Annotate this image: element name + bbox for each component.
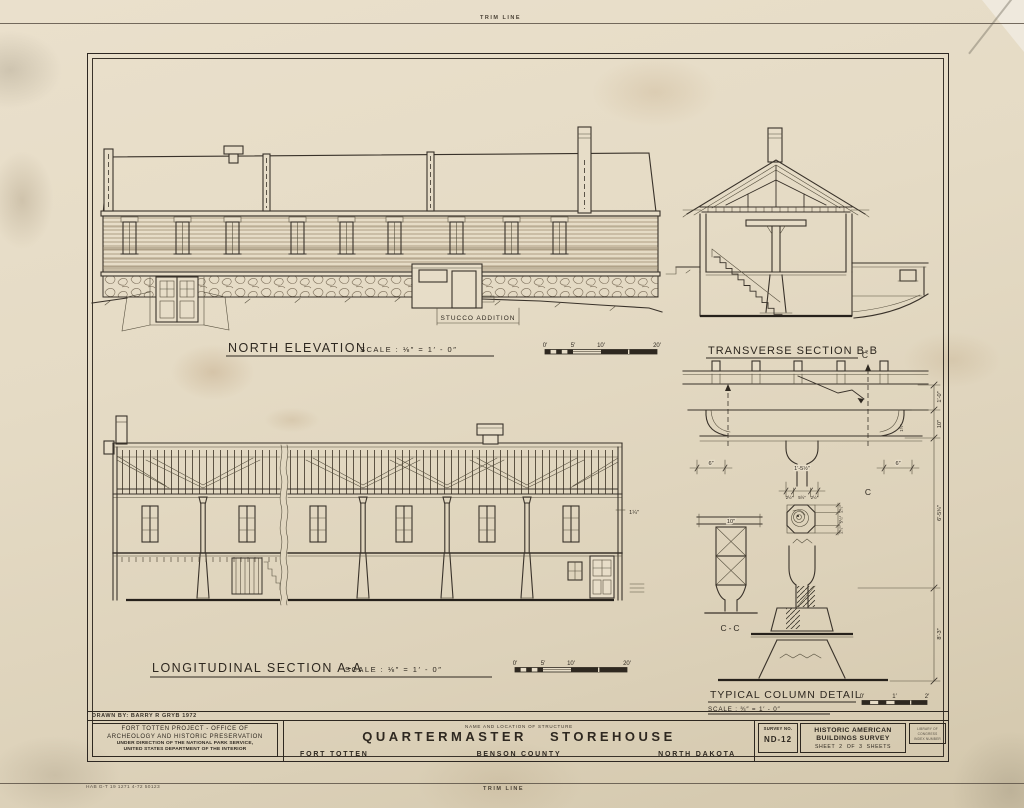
location-state: NORTH DAKOTA <box>658 751 736 758</box>
transverse-section-caption: TRANSVERSE SECTION B-B C <box>706 345 878 360</box>
transverse-section-title: TRANSVERSE SECTION B-B <box>708 345 878 357</box>
dim-label-right: 1¼″ <box>629 510 639 516</box>
library-of-congress-box: LIBRARY OF CONGRESS INDEX NUMBER <box>909 723 946 744</box>
dim-oct-3: 2½″ <box>839 526 844 534</box>
title-block-top-strip: DRAWN BY: BARRY R GRYB 1972 <box>87 711 949 721</box>
scale-tick: 10′ <box>567 661 576 667</box>
drawn-by-credit: DRAWN BY: BARRY R GRYB 1972 <box>92 713 197 719</box>
dim-oct-2: 5½″ <box>839 515 844 523</box>
title-block-agency-cell: FORT TOTTEN PROJECT - OFFICE OF ARCHEOLO… <box>87 721 283 761</box>
column-detail-scale-bar: 0′ 1′ 2′ <box>860 694 930 705</box>
loc-line-1: LIBRARY OF CONGRESS <box>910 727 945 737</box>
north-elevation-caption: NORTH ELEVATION SCALE : ⅛″ = 1′ - 0″ <box>226 341 494 356</box>
dim-six-right: 6″ <box>895 461 900 467</box>
longitudinal-scale-bar: 0′ 5′ 10′ 20′ <box>513 661 632 672</box>
longitudinal-section-scale: SCALE : ⅛″ = 1′ - 0″ <box>345 665 442 674</box>
structure-name: QUARTERMASTER STOREHOUSE <box>284 729 754 744</box>
scale-tick: 0′ <box>543 343 548 349</box>
longitudinal-section-caption: LONGITUDINAL SECTION A-A SCALE : ⅛″ = 1′… <box>150 661 492 677</box>
stucco-addition-label: STUCCO ADDITION <box>441 315 516 322</box>
project-office-box: FORT TOTTEN PROJECT - OFFICE OF ARCHEOLO… <box>92 723 278 757</box>
dim-chain-4: 8′-3″ <box>937 628 943 639</box>
section-cut-mark-c-top: C <box>862 350 868 360</box>
title-block: DRAWN BY: BARRY R GRYB 1972 FORT TOTTEN … <box>87 711 949 761</box>
scale-tick: 1′ <box>892 694 897 700</box>
structure-name-caption: NAME AND LOCATION OF STRUCTURE <box>284 724 754 729</box>
column-detail-drawing <box>683 361 940 684</box>
section-cut-mark-c-bottom: C <box>865 487 871 497</box>
dim-cc-width: 10″ <box>727 519 735 525</box>
habs-line-2: BUILDINGS SURVEY <box>801 735 905 743</box>
drawing-sheet: TRIM LINE TRIM LINE HAB G-T 19 1271 4-72… <box>0 0 1024 808</box>
scale-tick: 20′ <box>623 661 632 667</box>
project-line: ARCHEOLOGY AND HISTORIC PRESERVATION <box>93 734 277 742</box>
section-label-cc: C-C <box>720 623 741 633</box>
transverse-section-drawing <box>666 128 928 318</box>
scale-tick: 2′ <box>925 694 930 700</box>
scale-tick: 5′ <box>571 343 576 349</box>
survey-number: ND-12 <box>759 735 797 744</box>
column-detail-title: TYPICAL COLUMN DETAIL <box>710 689 862 701</box>
dim-chain-1: 1′-0″ <box>937 391 943 402</box>
scale-tick: 0′ <box>513 661 518 667</box>
column-detail-dim-labels: 1′-0″ 10″ 6′-5¾″ 8′-3″ 6″ 6″ 1′-5½″ 2½″ … <box>708 391 943 639</box>
north-elevation-title: NORTH ELEVATION <box>228 341 367 355</box>
scale-tick: 20′ <box>653 343 662 349</box>
scale-tick: 10′ <box>597 343 606 349</box>
dim-chain-3: 6′-5¾″ <box>937 505 943 521</box>
scale-tick: 0′ <box>860 694 865 700</box>
title-block-name-cell: NAME AND LOCATION OF STRUCTURE QUARTERMA… <box>283 721 755 761</box>
north-elevation-scale: SCALE : ⅛″ = 1′ - 0″ <box>360 345 457 354</box>
north-elevation-scale-bar: 0′ 5′ 10′ 20′ <box>543 343 662 354</box>
survey-number-caption: SURVEY NO. <box>759 726 797 731</box>
dim-cap-row-2: 5½″ <box>798 495 806 500</box>
drawing-canvas: STUCCO ADDITION NORTH ELEVATION SCALE : … <box>0 0 1024 808</box>
title-block-survey-cell: SURVEY NO. ND-12 HISTORIC AMERICAN BUILD… <box>755 721 949 761</box>
longitudinal-section-title: LONGITUDINAL SECTION A-A <box>152 661 363 675</box>
dim-six-left: 6″ <box>708 461 713 467</box>
habs-box: HISTORIC AMERICAN BUILDINGS SURVEY SHEET… <box>800 723 906 753</box>
dim-oct-1: 2½″ <box>839 505 844 513</box>
dim-chain-2: 10″ <box>937 420 943 428</box>
north-elevation-drawing: STUCCO ADDITION <box>92 127 662 331</box>
dim-bracket: 1½″ <box>899 424 904 432</box>
scale-tick: 5′ <box>541 661 546 667</box>
dim-cap-row-1: 2½″ <box>786 495 794 500</box>
dim-cap-row-3: 2½″ <box>811 495 819 500</box>
longitudinal-section-drawing: 1¼″ <box>104 416 644 605</box>
project-line: UNITED STATES DEPARTMENT OF THE INTERIOR <box>93 747 277 753</box>
project-line: FORT TOTTEN PROJECT - OFFICE OF <box>93 726 277 734</box>
dim-cap-width: 1′-5½″ <box>794 465 810 472</box>
survey-number-box: SURVEY NO. ND-12 <box>758 723 798 753</box>
habs-line-1: HISTORIC AMERICAN <box>801 727 905 735</box>
sheet-count: SHEET 2 OF 3 SHEETS <box>801 744 905 750</box>
loc-line-2: INDEX NUMBER <box>910 737 945 742</box>
